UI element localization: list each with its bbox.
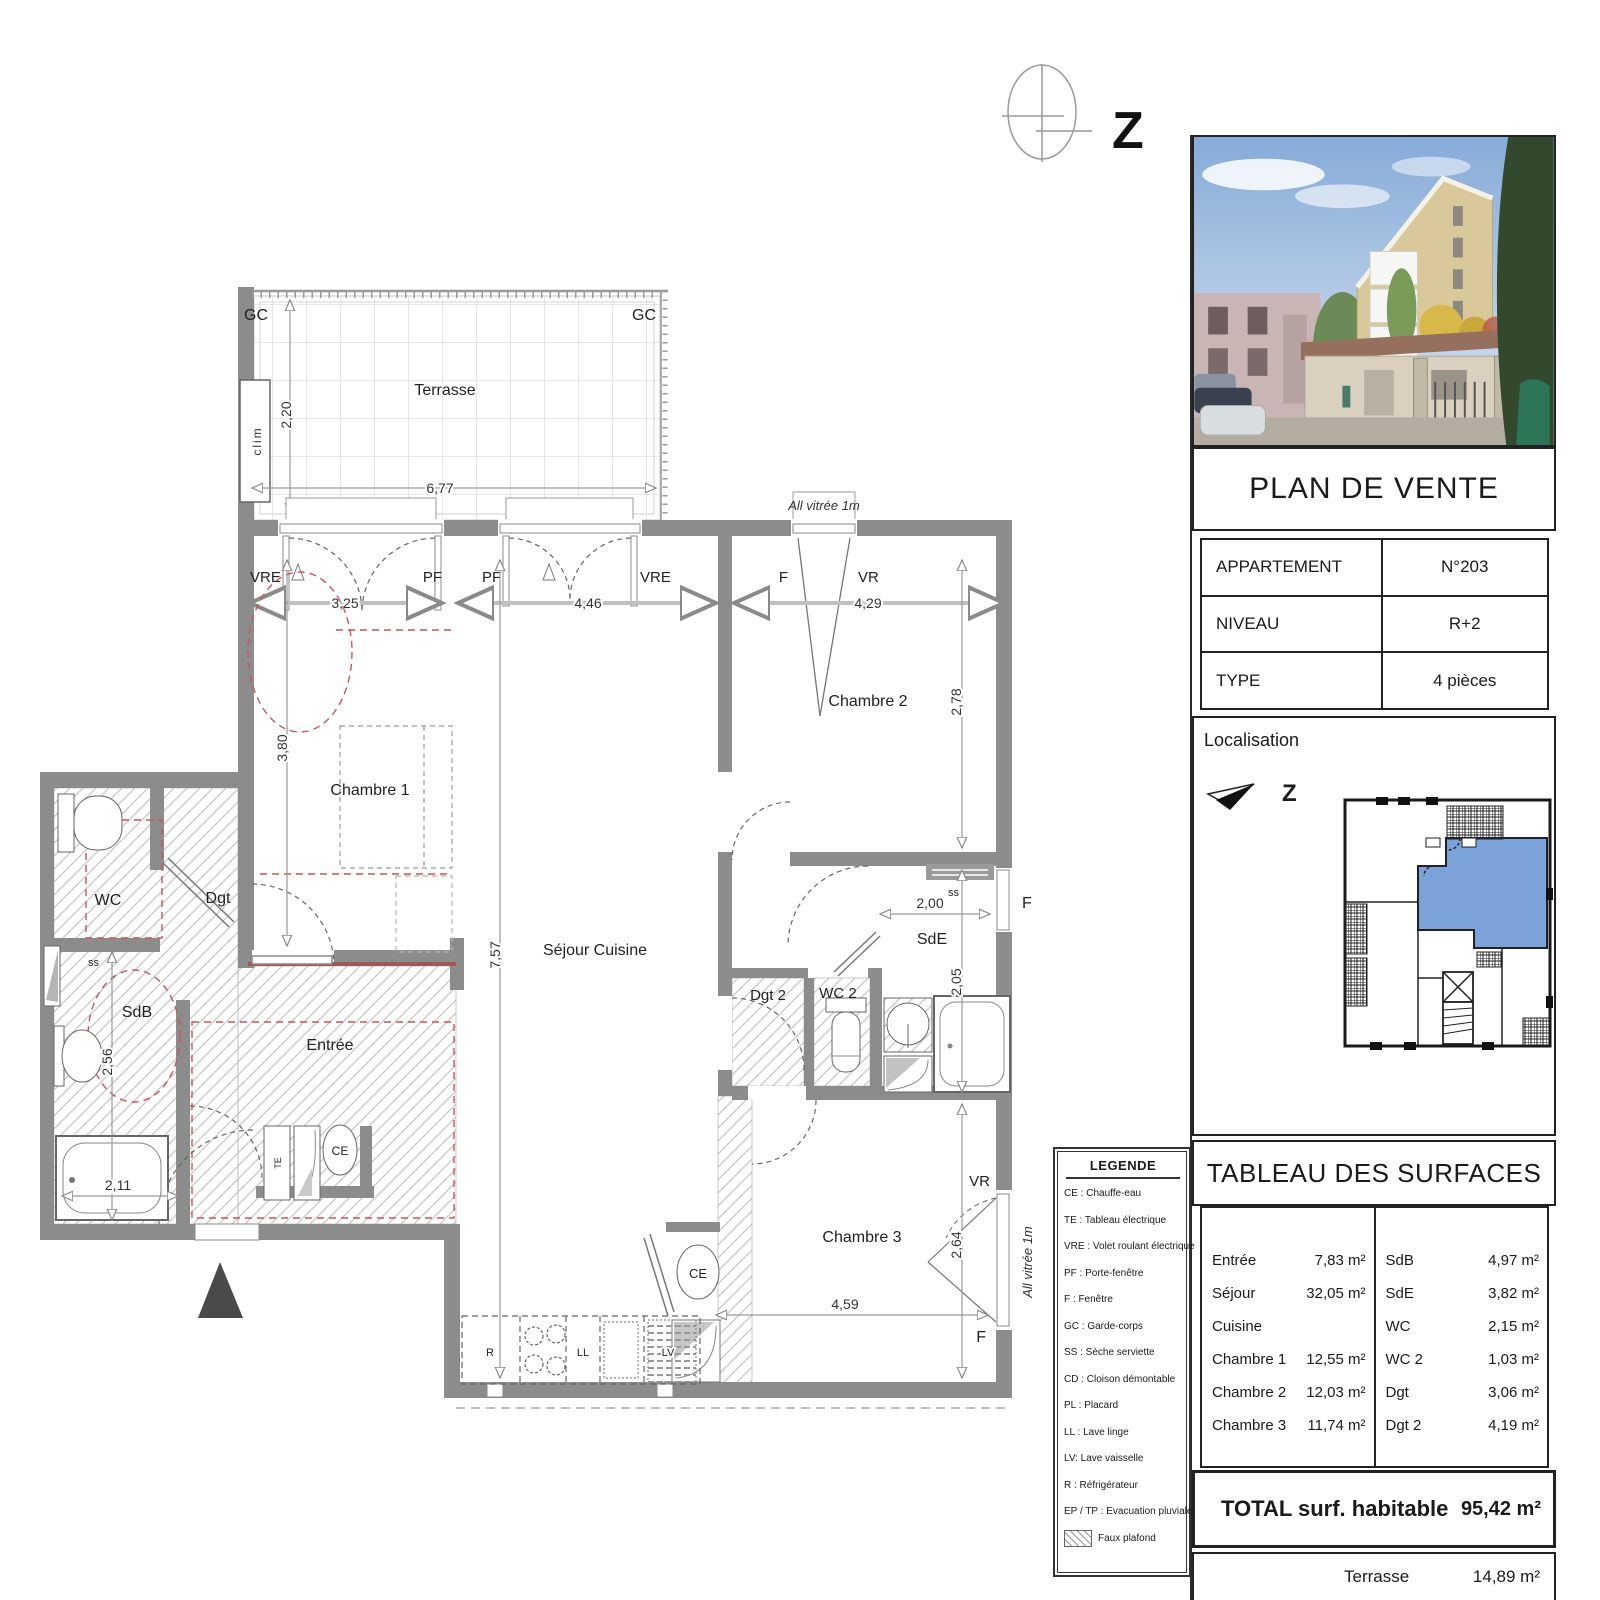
info-value-niveau: R+2: [1383, 597, 1548, 652]
surfaces-table: Entrée7,83 m² Séjour Cuisine32,05 m² Cha…: [1200, 1206, 1549, 1468]
w1-right-label: PF: [423, 569, 442, 586]
legend-item: VRE : Volet roulant électrique: [1064, 1234, 1182, 1261]
page: Z clim GC GC Terrasse 2,20 6,77: [0, 0, 1600, 1600]
sejour-label: Séjour Cuisine: [543, 942, 647, 959]
ch3-vr-label: VR: [969, 1173, 990, 1190]
sdb-dim-w: 2,11: [105, 1177, 131, 1193]
note-all-vitree-top: All vitrée 1m: [787, 498, 860, 513]
ch3-dim-w: 4,59: [831, 1296, 858, 1312]
info-value-appartement: N°203: [1383, 540, 1548, 595]
kitchen-lv-label: LV: [662, 1347, 675, 1359]
chambre2-label: Chambre 2: [828, 693, 907, 710]
room-area: 1,03 m²: [1488, 1343, 1539, 1376]
room-area: 7,83 m²: [1315, 1244, 1366, 1277]
w1-left-label: VRE: [250, 569, 281, 586]
compass: Z: [1002, 64, 1144, 162]
entree-label: Entrée: [306, 1037, 353, 1054]
note-all-vitree-right: All vitrée 1m: [1020, 1226, 1035, 1299]
localisation-title: Localisation: [1204, 730, 1299, 751]
table-row: SdE3,82 m²: [1386, 1277, 1540, 1310]
surfaces-right-column: SdB4,97 m² SdE3,82 m² WC2,15 m² WC 21,03…: [1374, 1208, 1548, 1466]
legend-item: CE : Chauffe-eau: [1064, 1181, 1182, 1208]
sde-dim: 2,05: [948, 968, 964, 995]
room-name: SdB: [1386, 1244, 1414, 1277]
compass-north-label: Z: [1112, 102, 1144, 160]
legend-item: CD : Cloison démontable: [1064, 1367, 1182, 1394]
faux-plafond-hatch-icon: [1064, 1530, 1092, 1547]
w3-dim: 4,29: [854, 595, 881, 611]
plan-title-text: PLAN DE VENTE: [1249, 472, 1499, 506]
north-arrow-icon: [1206, 780, 1276, 826]
info-table: APPARTEMENT N°203 NIVEAU R+2 TYPE 4 pièc…: [1200, 538, 1549, 710]
building-photo-image: [1194, 137, 1554, 445]
wc2-label: WC 2: [819, 985, 857, 1002]
te-label: TE: [273, 1157, 283, 1169]
info-label-appartement: APPARTEMENT: [1202, 540, 1383, 595]
legend-inner: LEGENDE CE : Chauffe-eau TE : Tableau él…: [1057, 1151, 1187, 1573]
ch3-dim-v: 2,64: [948, 1231, 964, 1258]
sdb-dim-v: 2,56: [99, 1048, 115, 1075]
info-value-type: 4 pièces: [1383, 653, 1548, 708]
table-row: Chambre 311,74 m²: [1212, 1409, 1366, 1442]
sejour-dim: 7,57: [487, 941, 503, 968]
total-row: TOTAL surf. habitable 95,42 m²: [1192, 1470, 1556, 1548]
surfaces-left-column: Entrée7,83 m² Séjour Cuisine32,05 m² Cha…: [1202, 1208, 1374, 1466]
terrasse-dim-height: 2,20: [278, 401, 294, 428]
chambre3-label: Chambre 3: [822, 1229, 901, 1246]
info-label-niveau: NIVEAU: [1202, 597, 1383, 652]
gc-left-label: GC: [244, 307, 268, 324]
kitchen-r-label: R: [486, 1347, 494, 1359]
total-value: 95,42 m²: [1461, 1498, 1541, 1521]
ce2-label: CE: [689, 1266, 707, 1281]
legend-item: F : Fenêtre: [1064, 1287, 1182, 1314]
room-area: 12,03 m²: [1306, 1376, 1365, 1409]
legend-item: PL : Placard: [1064, 1393, 1182, 1420]
table-row: TYPE 4 pièces: [1202, 653, 1547, 708]
terrasse-row-value: 14,89 m²: [1473, 1567, 1540, 1587]
legend-item: PF : Porte-fenêtre: [1064, 1261, 1182, 1288]
sde-window-label: F: [1022, 895, 1032, 912]
table-row: SdB4,97 m²: [1386, 1244, 1540, 1277]
room-area: 11,74 m²: [1307, 1409, 1365, 1442]
legend-item: GC : Garde-corps: [1064, 1314, 1182, 1341]
legend-item: SS : Sèche serviette: [1064, 1340, 1182, 1367]
dgt2-label: Dgt 2: [750, 987, 786, 1004]
legend-divider: [1066, 1177, 1180, 1179]
w1-dim: 3,25: [331, 595, 358, 611]
total-label: TOTAL surf. habitable: [1221, 1496, 1448, 1522]
terrasse-label: Terrasse: [414, 382, 475, 399]
legend-item: R : Réfrigérateur: [1064, 1473, 1182, 1500]
room-area: 3,06 m²: [1488, 1376, 1539, 1409]
room-name: WC: [1386, 1310, 1411, 1343]
terrasse-dim-width: 6,77: [426, 480, 453, 496]
plan-title: PLAN DE VENTE: [1192, 447, 1556, 531]
room-name: WC 2: [1386, 1343, 1424, 1376]
localisation-north-label: Z: [1282, 780, 1297, 808]
room-name: Entrée: [1212, 1244, 1256, 1277]
table-row: Séjour Cuisine32,05 m²: [1212, 1277, 1366, 1343]
room-area: 32,05 m²: [1306, 1277, 1365, 1343]
ch1-dim: 3,80: [274, 734, 290, 761]
gc-right-label: GC: [632, 307, 656, 324]
table-row: Chambre 212,03 m²: [1212, 1376, 1366, 1409]
sdb-label: SdB: [122, 1004, 152, 1021]
room-name: Dgt 2: [1386, 1409, 1422, 1442]
ch2-dim: 2,78: [948, 688, 964, 715]
room-area: 3,82 m²: [1488, 1277, 1539, 1310]
legend-item: LL : Lave linge: [1064, 1420, 1182, 1447]
building-photo: [1192, 135, 1556, 447]
clim-label: clim: [250, 426, 264, 455]
room-name: SdE: [1386, 1277, 1414, 1310]
terrasse: clim GC GC Terrasse 2,20 6,77: [238, 287, 668, 522]
legend-box: LEGENDE CE : Chauffe-eau TE : Tableau él…: [1053, 1147, 1191, 1577]
localisation-box: Localisation Z: [1192, 716, 1556, 1136]
legend-item: TE : Tableau électrique: [1064, 1208, 1182, 1235]
table-row: WC 21,03 m²: [1386, 1343, 1540, 1376]
room-area: 4,19 m²: [1488, 1409, 1539, 1442]
table-row: Dgt 24,19 m²: [1386, 1409, 1540, 1442]
surfaces-title-text: TABLEAU DES SURFACES: [1207, 1158, 1542, 1189]
room-name: Chambre 3: [1212, 1409, 1286, 1442]
terrasse-row-label: Terrasse: [1344, 1567, 1409, 1587]
room-name: Chambre 1: [1212, 1343, 1286, 1376]
sde-ss-label: ss: [948, 887, 960, 899]
faux-plafond-label: Faux plafond: [1098, 1533, 1156, 1544]
chambre1-furniture: [340, 726, 452, 952]
sde-dim-w: 2,00: [916, 895, 943, 911]
dgt-label: Dgt: [206, 890, 231, 907]
room-area: 12,55 m²: [1306, 1343, 1365, 1376]
entrance-arrow: [198, 1262, 243, 1318]
table-row: Entrée7,83 m²: [1212, 1244, 1366, 1277]
info-label-type: TYPE: [1202, 653, 1383, 708]
legend-item: LV: Lave vaisselle: [1064, 1446, 1182, 1473]
legend-title: LEGENDE: [1064, 1158, 1182, 1173]
surfaces-title: TABLEAU DES SURFACES: [1192, 1140, 1556, 1206]
table-row: APPARTEMENT N°203: [1202, 540, 1547, 597]
w2-dim: 4,46: [574, 595, 601, 611]
room-name: Dgt: [1386, 1376, 1409, 1409]
legend-item: EP / TP : Evacuation pluviale: [1064, 1499, 1182, 1526]
ce1-label: CE: [332, 1144, 349, 1158]
wc-label: WC: [95, 892, 122, 909]
w2-left-label: PF: [482, 569, 501, 586]
room-area: 4,97 m²: [1488, 1244, 1539, 1277]
table-row: WC2,15 m²: [1386, 1310, 1540, 1343]
w2-right-label: VRE: [640, 569, 671, 586]
kitchen-ll-label: LL: [577, 1347, 589, 1359]
localisation-minimap: [1342, 796, 1554, 1052]
room-name: Séjour Cuisine: [1212, 1277, 1306, 1343]
w3-left-label: F: [779, 569, 788, 586]
w3-right-label: VR: [858, 569, 879, 586]
legend-faux-plafond-row: Faux plafond: [1064, 1530, 1182, 1547]
room-area: 2,15 m²: [1488, 1310, 1539, 1343]
sdb-ss-label: ss: [88, 957, 100, 969]
sde-label: SdE: [917, 931, 947, 948]
table-row: Chambre 112,55 m²: [1212, 1343, 1366, 1376]
terrasse-row: Terrasse 14,89 m²: [1192, 1552, 1556, 1600]
table-row: Dgt3,06 m²: [1386, 1376, 1540, 1409]
ch3-f-label: F: [976, 1329, 986, 1346]
table-row: NIVEAU R+2: [1202, 597, 1547, 654]
chambre1-label: Chambre 1: [330, 782, 409, 799]
room-name: Chambre 2: [1212, 1376, 1286, 1409]
